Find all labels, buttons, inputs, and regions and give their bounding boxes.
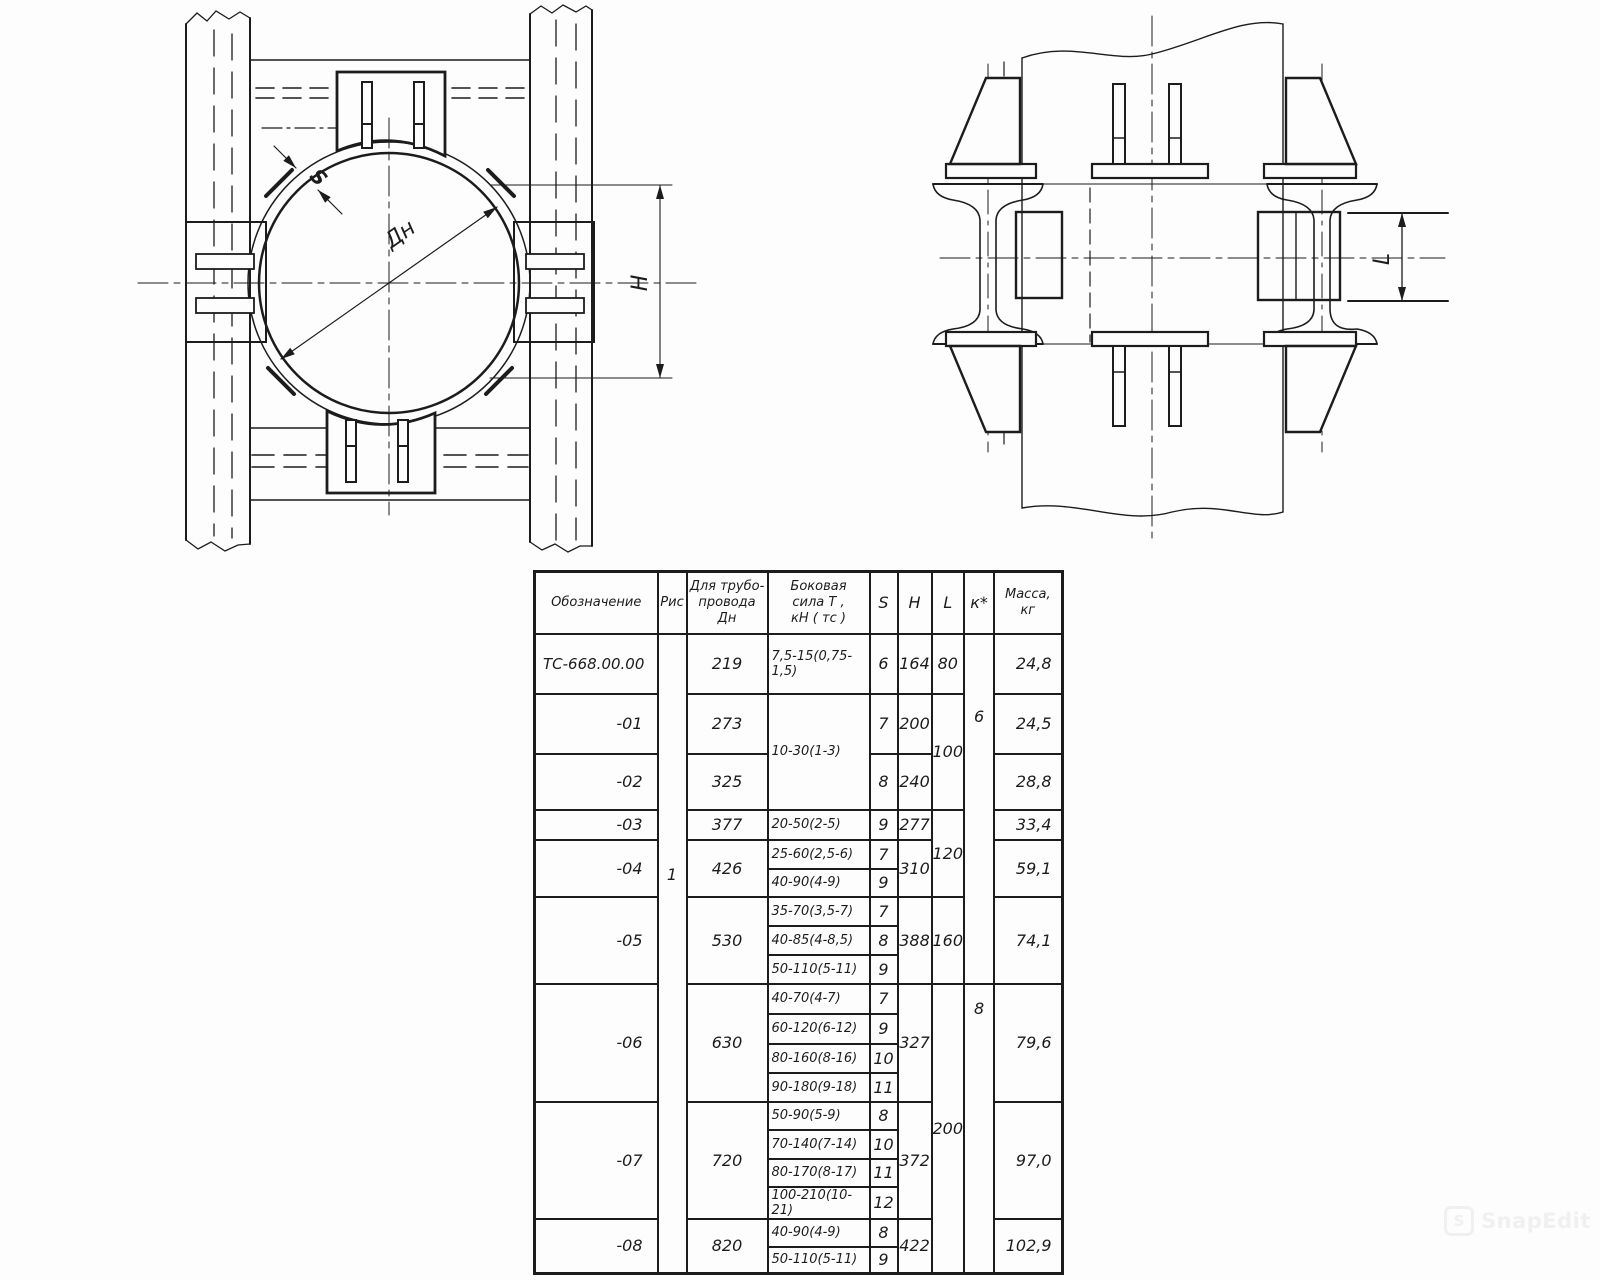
table-cell: 530 (687, 897, 768, 984)
table-cell: 50-90(5-9) (768, 1102, 870, 1130)
table-cell: 6 (964, 634, 994, 984)
table-row: ТС-668.00.0012197,5-15(0,75-1,5)61648062… (535, 634, 1063, 694)
table-cell: 9 (870, 955, 898, 984)
left-column (186, 11, 250, 551)
col-header-designation: Обозначение (535, 572, 658, 634)
table-cell: 388 (898, 897, 932, 984)
table-cell: 200 (898, 694, 932, 754)
bolt (1169, 84, 1181, 164)
table-cell: 9 (870, 869, 898, 897)
table-cell: -01 (535, 694, 658, 754)
gusset (950, 346, 1020, 432)
watermark: S SnapEdit (1444, 1206, 1591, 1236)
table-cell: 90-180(9-18) (768, 1073, 870, 1102)
table-cell: 97,0 (994, 1102, 1062, 1219)
arrowhead-icon (1398, 287, 1406, 301)
table-cell: 28,8 (994, 754, 1062, 810)
table-cell: 80 (932, 634, 965, 694)
lug-plate (196, 254, 254, 269)
table-cell: 325 (687, 754, 768, 810)
arrowhead-icon (483, 207, 497, 218)
table-cell: 25-60(2,5-6) (768, 840, 870, 869)
table-cell: 8 (870, 754, 898, 810)
break-line (186, 11, 250, 24)
table-cell: -03 (535, 810, 658, 840)
lug-right (514, 222, 594, 342)
table-cell: 100 (932, 694, 965, 810)
bolt (1113, 84, 1125, 164)
table-cell: -04 (535, 840, 658, 897)
spec-table-body: ТС-668.00.0012197,5-15(0,75-1,5)61648062… (535, 634, 1063, 1274)
table-cell: 120 (932, 810, 965, 897)
table-cell: 1 (658, 634, 687, 1274)
lug-side-left (1016, 212, 1062, 298)
table-cell: 102,9 (994, 1219, 1062, 1274)
table-cell: 377 (687, 810, 768, 840)
table-cell: ТС-668.00.00 (535, 634, 658, 694)
base-plate (1092, 164, 1208, 178)
table-cell: 327 (898, 984, 932, 1102)
base-plate (1264, 164, 1356, 178)
table-cell: 100-210(10-21) (768, 1187, 870, 1219)
table-cell: 60-120(6-12) (768, 1014, 870, 1044)
arrowhead-icon (1398, 213, 1406, 227)
drawing-sheet: Дн S H (0, 0, 1600, 1280)
table-cell: 372 (898, 1102, 932, 1219)
table-cell: 7 (870, 840, 898, 869)
length-label: L (1370, 253, 1395, 265)
table-cell: 80-160(8-16) (768, 1044, 870, 1073)
table-cell: 7,5-15(0,75-1,5) (768, 634, 870, 694)
base-plate (1264, 332, 1356, 346)
col-header-l: L (932, 572, 965, 634)
table-cell: 50-110(5-11) (768, 955, 870, 984)
arrowhead-icon (281, 348, 295, 359)
table-cell: 9 (870, 1014, 898, 1044)
table-cell: 200 (932, 984, 965, 1274)
table-cell: 10 (870, 1044, 898, 1073)
watermark-icon-letter: S (1454, 1212, 1465, 1230)
lug-plate (526, 298, 584, 313)
base-plate (946, 332, 1036, 346)
table-cell: 40-90(4-9) (768, 869, 870, 897)
table-cell: -02 (535, 754, 658, 810)
diameter-label: Дн (379, 215, 420, 254)
table-cell: 50-110(5-11) (768, 1247, 870, 1274)
table-cell: 164 (898, 634, 932, 694)
table-cell: 12 (870, 1187, 898, 1219)
table-cell: 24,8 (994, 634, 1062, 694)
table-cell: 9 (870, 810, 898, 840)
table-cell: 273 (687, 694, 768, 754)
base-plate (946, 164, 1036, 178)
table-cell: 11 (870, 1073, 898, 1102)
table-cell: 310 (898, 840, 932, 897)
dim-length: L (1348, 213, 1448, 301)
break-line (186, 540, 250, 551)
table-cell: 10 (870, 1130, 898, 1159)
table-cell: 33,4 (994, 810, 1062, 840)
base-plate (1092, 332, 1208, 346)
table-cell: -07 (535, 1102, 658, 1219)
spec-table-grid: Обозначение Рис Для трубо- провода Дн Бо… (533, 570, 1064, 1275)
bolt-slot (398, 420, 408, 482)
col-header-s: S (870, 572, 898, 634)
table-cell: 40-90(4-9) (768, 1219, 870, 1247)
table-cell: 7 (870, 984, 898, 1014)
watermark-text: SnapEdit (1481, 1209, 1591, 1233)
right-column (530, 5, 592, 552)
bolt (1113, 346, 1125, 426)
col-header-mass: Масса, кг (994, 572, 1062, 634)
table-cell: 277 (898, 810, 932, 840)
table-cell: 59,1 (994, 840, 1062, 897)
table-cell: 630 (687, 984, 768, 1102)
bolt-slot (346, 420, 356, 482)
table-cell: 8 (870, 1219, 898, 1247)
spec-table: Обозначение Рис Для трубо- провода Дн Бо… (533, 570, 1064, 1275)
bolt-slot (362, 82, 372, 148)
table-cell: 40-85(4-8,5) (768, 926, 870, 955)
table-cell: 720 (687, 1102, 768, 1219)
right-view: L (933, 16, 1448, 540)
header-row: Обозначение Рис Для трубо- провода Дн Бо… (535, 572, 1063, 634)
clamp-bottom-assembly (946, 332, 1356, 432)
arrowhead-icon (656, 185, 664, 199)
table-cell: 9 (870, 1247, 898, 1274)
gusset (1286, 346, 1356, 432)
table-cell: 11 (870, 1159, 898, 1187)
table-cell: 422 (898, 1219, 932, 1274)
lug-side-right (1258, 212, 1340, 300)
height-label: H (628, 275, 653, 292)
snapedit-logo-icon: S (1444, 1206, 1474, 1236)
clamp-bottom-block (327, 411, 435, 493)
table-cell: 8 (870, 926, 898, 955)
table-cell: -06 (535, 984, 658, 1102)
table-cell: 40-70(4-7) (768, 984, 870, 1014)
table-cell: 6 (870, 634, 898, 694)
table-cell: 70-140(7-14) (768, 1130, 870, 1159)
break-line (530, 542, 592, 552)
left-view: Дн S H (138, 5, 700, 552)
table-cell: 74,1 (994, 897, 1062, 984)
table-cell: 7 (870, 897, 898, 926)
col-header-k: к* (964, 572, 994, 634)
table-cell: 240 (898, 754, 932, 810)
table-cell: 8 (964, 984, 994, 1274)
gusset (950, 78, 1020, 164)
table-cell: -05 (535, 897, 658, 984)
gusset (1286, 78, 1356, 164)
table-row: -0663040-70(4-7)7327200879,6 (535, 984, 1063, 1014)
table-cell: 35-70(3,5-7) (768, 897, 870, 926)
table-cell: 10-30(1-3) (768, 694, 870, 810)
dim-height: H (490, 185, 672, 378)
table-cell: 79,6 (994, 984, 1062, 1102)
bolt-slot (414, 82, 424, 148)
table-cell: 20-50(2-5) (768, 810, 870, 840)
table-cell: 219 (687, 634, 768, 694)
arrowhead-icon (656, 364, 664, 378)
clamp-top-block (337, 72, 445, 156)
break-line (530, 5, 592, 14)
table-cell: 7 (870, 694, 898, 754)
bolt (1169, 346, 1181, 426)
lug-plate (196, 298, 254, 313)
table-cell: 160 (932, 897, 965, 984)
table-cell: 24,5 (994, 694, 1062, 754)
col-header-force: Боковая сила Т , кН ( тс ) (768, 572, 870, 634)
clamp-top-assembly (946, 78, 1356, 178)
table-cell: 8 (870, 1102, 898, 1130)
table-cell: 820 (687, 1219, 768, 1274)
col-header-fig: Рис (658, 572, 687, 634)
col-header-pipe: Для трубо- провода Дн (687, 572, 768, 634)
col-header-h: H (898, 572, 932, 634)
table-cell: -08 (535, 1219, 658, 1274)
table-cell: 80-170(8-17) (768, 1159, 870, 1187)
lug-plate (526, 254, 584, 269)
table-cell: 426 (687, 840, 768, 897)
